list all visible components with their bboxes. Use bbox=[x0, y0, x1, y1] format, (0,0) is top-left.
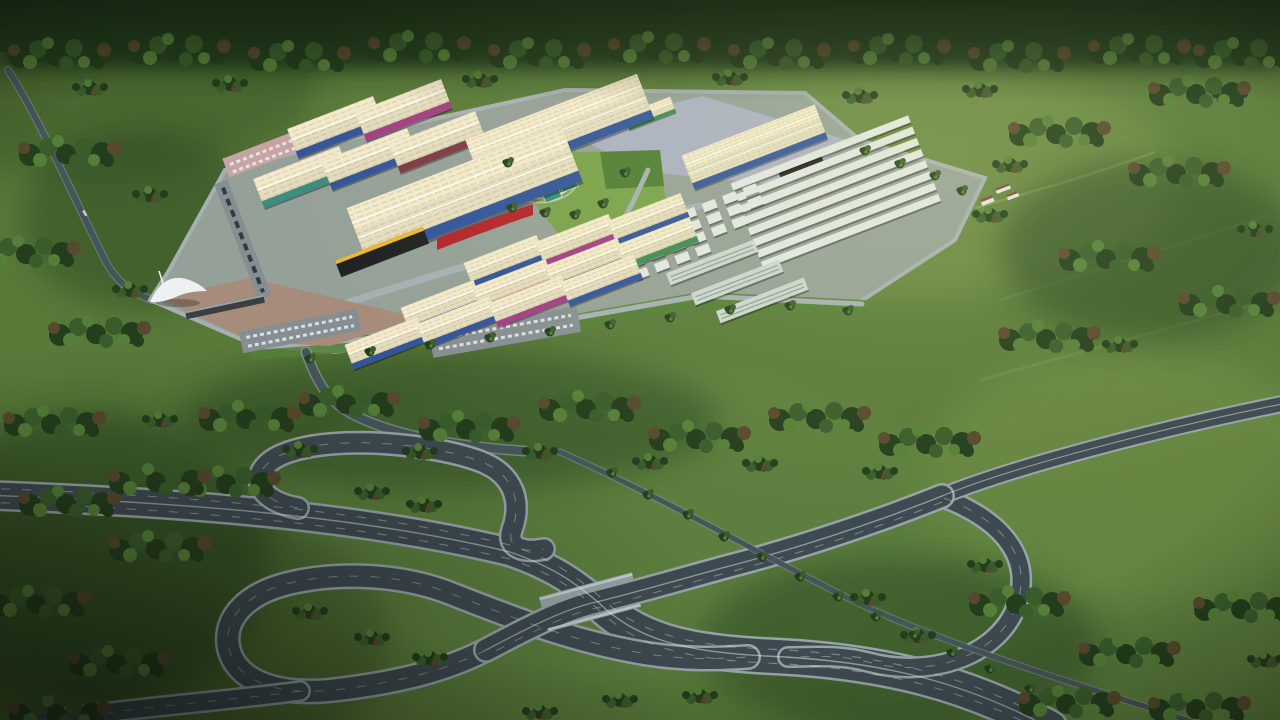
top-shade bbox=[0, 0, 1280, 720]
lighting-overlays bbox=[0, 0, 1280, 720]
scene-canvas: Aerial 3D rendering of an industrial par… bbox=[0, 0, 1280, 720]
aerial-render: Aerial 3D rendering of an industrial par… bbox=[0, 0, 1280, 720]
